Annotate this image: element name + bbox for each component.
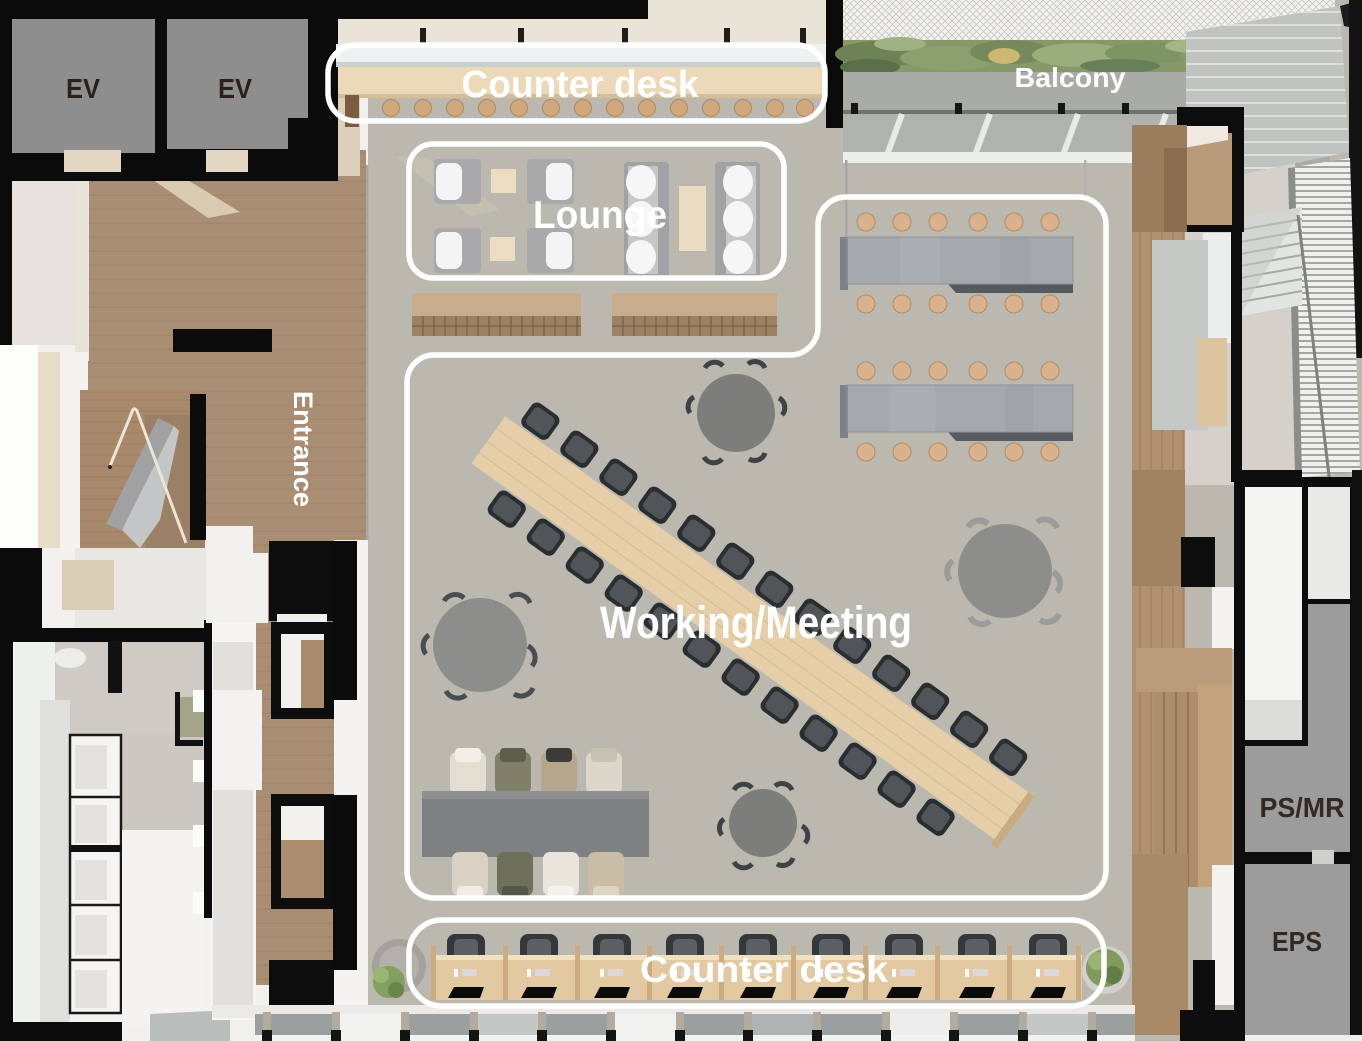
svg-text:Entrance: Entrance: [288, 391, 318, 507]
svg-text:Working/Meeting: Working/Meeting: [600, 597, 912, 648]
svg-text:EV: EV: [218, 73, 252, 104]
svg-text:Lounge: Lounge: [533, 194, 667, 237]
svg-text:PS/MR: PS/MR: [1260, 792, 1345, 823]
svg-text:EPS: EPS: [1272, 926, 1322, 957]
svg-text:Counter desk: Counter desk: [462, 64, 700, 106]
svg-text:EV: EV: [66, 73, 100, 104]
svg-text:Balcony: Balcony: [1015, 62, 1126, 93]
svg-text:Counter desk: Counter desk: [640, 949, 888, 990]
